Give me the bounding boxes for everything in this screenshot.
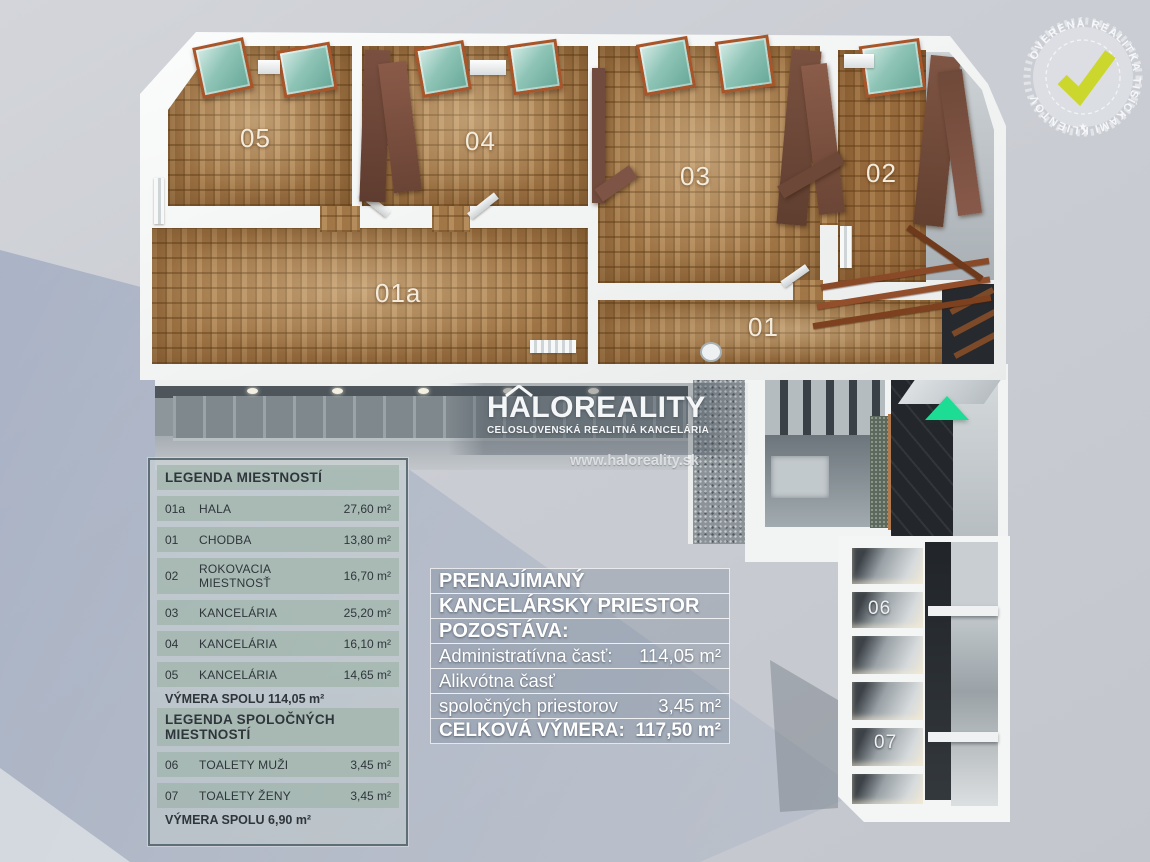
room-label-01: 01 (748, 312, 779, 343)
door-opening (793, 280, 823, 302)
info-label: CELKOVÁ VÝMERA: (439, 720, 625, 742)
scene: 06 07 (0, 0, 1150, 862)
window-sill (470, 60, 506, 75)
info-row: spoločných priestorov 3,45 m² (430, 693, 730, 719)
toilet-shelf (928, 732, 998, 742)
window-sill (258, 60, 280, 74)
skylight-window (636, 36, 696, 96)
room-name: CHODBA (199, 533, 344, 547)
info-label: Administratívna časť: (439, 645, 613, 667)
skylight-window (276, 42, 338, 99)
skylight-window (414, 40, 472, 98)
legend-panel: LEGENDA MIESTNOSTÍ 01a HALA 27,60 m² 01 … (148, 458, 408, 846)
info-row: CELKOVÁ VÝMERA: 117,50 m² (430, 718, 730, 744)
room-label-03: 03 (680, 161, 711, 192)
brand-subtitle: CELOSLOVENSKÁ REALITNÁ KANCELÁRIA (487, 425, 677, 436)
info-header-text: KANCELÁRSKY PRIESTOR (439, 595, 699, 618)
hall-01a (150, 228, 588, 364)
window-sill (844, 54, 874, 68)
room-label-06: 06 (868, 598, 891, 620)
room-name: TOALETY ŽENY (199, 789, 350, 803)
room-id: 06 (165, 758, 199, 772)
room-label-02: 02 (866, 158, 897, 189)
skylight-window (859, 38, 927, 98)
downlight-icon (418, 388, 429, 394)
legend-row: 04 KANCELÁRIA 16,10 m² (157, 631, 399, 656)
info-row: Administratívna časť: 114,05 m² (430, 643, 730, 669)
floor-plan: 05 04 03 02 01a 01 (140, 28, 1010, 380)
room-label-01a: 01a (375, 278, 421, 309)
staircase (942, 284, 1002, 364)
info-panel: PRENAJÍMANÝ KANCELÁRSKY PRIESTOR POZOSTÁ… (430, 569, 730, 744)
room-name: HALA (199, 502, 344, 516)
skylight-window (507, 39, 563, 95)
legend-row: 03 KANCELÁRIA 25,20 m² (157, 600, 399, 625)
logo-roof-icon (505, 385, 533, 397)
toilet-corridor-floor (951, 542, 998, 806)
info-value: 3,45 m² (658, 695, 721, 717)
room-label-07: 07 (874, 732, 897, 754)
room-id: 04 (165, 637, 199, 651)
info-value: 114,05 m² (639, 645, 721, 667)
room-id: 03 (165, 606, 199, 620)
room-label-04: 04 (465, 126, 496, 157)
info-row: Alikvótna časť (430, 668, 730, 694)
legend-total: VÝMERA SPOLU 114,05 m² (157, 687, 399, 708)
info-header-line: KANCELÁRSKY PRIESTOR (430, 593, 730, 619)
info-header-text: PRENAJÍMANÝ (439, 570, 585, 593)
toilet-cell (852, 548, 923, 584)
room-area: 25,20 m² (344, 606, 391, 620)
badge-star-icon: ★ (1079, 122, 1088, 133)
room-area: 16,10 m² (344, 637, 391, 651)
room-area: 14,65 m² (344, 668, 391, 682)
door-opening (320, 206, 360, 232)
info-header-text: POZOSTÁVA: (439, 620, 569, 643)
toilet-cell (852, 774, 923, 804)
room-name: KANCELÁRIA (199, 668, 344, 682)
info-header-line: PRENAJÍMANÝ (430, 568, 730, 594)
legend-row: 07 TOALETY ŽENY 3,45 m² (157, 783, 399, 808)
toilet-cell (852, 682, 923, 720)
radiator (840, 226, 852, 268)
legend-shared-title: LEGENDA SPOLOČNÝCH MIESTNOSTÍ (157, 708, 399, 746)
toilet-block: 06 07 (838, 536, 1010, 822)
room-area: 16,70 m² (344, 569, 391, 583)
legend-title: LEGENDA MIESTNOSTÍ (157, 465, 399, 490)
room-name: KANCELÁRIA (199, 637, 344, 651)
room-id: 01 (165, 533, 199, 547)
room-area: 3,45 m² (350, 758, 391, 772)
room-name: KANCELÁRIA (199, 606, 344, 620)
downlight-icon (332, 388, 343, 394)
info-label: Alikvótna časť (439, 670, 555, 692)
room-id: 05 (165, 668, 199, 682)
verified-badge: OVERENÁ REALITKA TISÍCKAMI KLIENTOV ★ (1018, 12, 1148, 142)
toilet-cell (852, 636, 923, 674)
skylight-window (715, 34, 776, 93)
stairwell-pillars (765, 380, 885, 435)
stairwell (745, 364, 1008, 562)
info-value: 117,50 m² (635, 720, 721, 742)
info-header-line: POZOSTÁVA: (430, 618, 730, 644)
room-id: 07 (165, 789, 199, 803)
info-label: spoločných priestorov (439, 695, 618, 717)
skylight-window (192, 37, 254, 99)
toilet-shelf (928, 606, 998, 616)
stairwell-cabinet (771, 456, 829, 498)
room-name: TOALETY MUŽI (199, 758, 350, 772)
radiator (154, 178, 164, 224)
entrance-arrow-icon (925, 396, 969, 420)
legend-shared-total: VÝMERA SPOLU 6,90 m² (157, 808, 399, 829)
downlight-icon (247, 388, 258, 394)
brand-logo: HALOREALITY CELOSLOVENSKÁ REALITNÁ KANCE… (487, 392, 677, 436)
room-area: 27,60 m² (344, 502, 391, 516)
room-id: 01a (165, 502, 199, 516)
legend-row: 05 KANCELÁRIA 14,65 m² (157, 662, 399, 687)
room-area: 3,45 m² (350, 789, 391, 803)
legend-row: 06 TOALETY MUŽI 3,45 m² (157, 752, 399, 777)
room-name: ROKOVACIA MIESTNOSŤ (199, 562, 344, 590)
radiator (530, 340, 576, 353)
sink (700, 342, 722, 362)
room-label-05: 05 (240, 123, 271, 154)
green-wall (870, 416, 888, 528)
toilet-dark-wall (925, 542, 951, 800)
legend-row: 02 ROKOVACIA MIESTNOSŤ 16,70 m² (157, 558, 399, 594)
legend-row: 01 CHODBA 13,80 m² (157, 527, 399, 552)
room-area: 13,80 m² (344, 533, 391, 547)
door-opening (432, 206, 470, 232)
room-id: 02 (165, 569, 199, 583)
website-link: www.haloreality.sk (570, 453, 699, 469)
legend-row: 01a HALA 27,60 m² (157, 496, 399, 521)
